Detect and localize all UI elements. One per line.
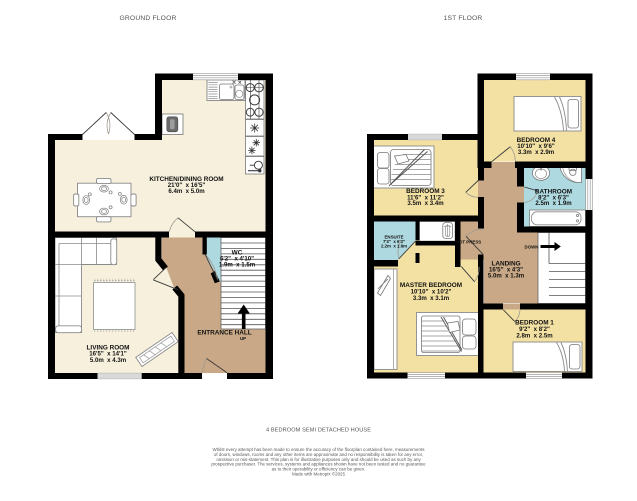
svg-text:3.3m x 2.9m: 3.3m x 2.9m: [518, 149, 555, 156]
svg-text:GROUND FLOOR: GROUND FLOOR: [119, 15, 176, 22]
svg-text:6.4m x 5.0m: 6.4m x 5.0m: [168, 188, 205, 195]
svg-text:1.9m x 1.5m: 1.9m x 1.5m: [219, 262, 256, 269]
svg-text:2.2m x 1.6m: 2.2m x 1.6m: [381, 244, 407, 249]
svg-text:HOT PRESS: HOT PRESS: [456, 239, 481, 244]
svg-text:2.5m x 1.9m: 2.5m x 1.9m: [535, 200, 572, 207]
svg-text:1ST FLOOR: 1ST FLOOR: [444, 15, 483, 22]
svg-text:4 BEDROOM SEMI DETACHED HOUSE: 4 BEDROOM SEMI DETACHED HOUSE: [266, 428, 371, 434]
svg-text:3.5m x 3.4m: 3.5m x 3.4m: [407, 200, 444, 207]
svg-text:2.8m x 2.5m: 2.8m x 2.5m: [516, 332, 553, 339]
svg-text:UP: UP: [240, 336, 246, 341]
svg-text:5.0m x 1.3m: 5.0m x 1.3m: [488, 272, 525, 279]
svg-text:3.3m x 3.1m: 3.3m x 3.1m: [413, 295, 450, 302]
svg-text:5.0m x 4.3m: 5.0m x 4.3m: [90, 357, 127, 364]
svg-text:Made with Metropix ©2025: Made with Metropix ©2025: [292, 470, 346, 476]
svg-text:DOWN: DOWN: [525, 245, 539, 250]
